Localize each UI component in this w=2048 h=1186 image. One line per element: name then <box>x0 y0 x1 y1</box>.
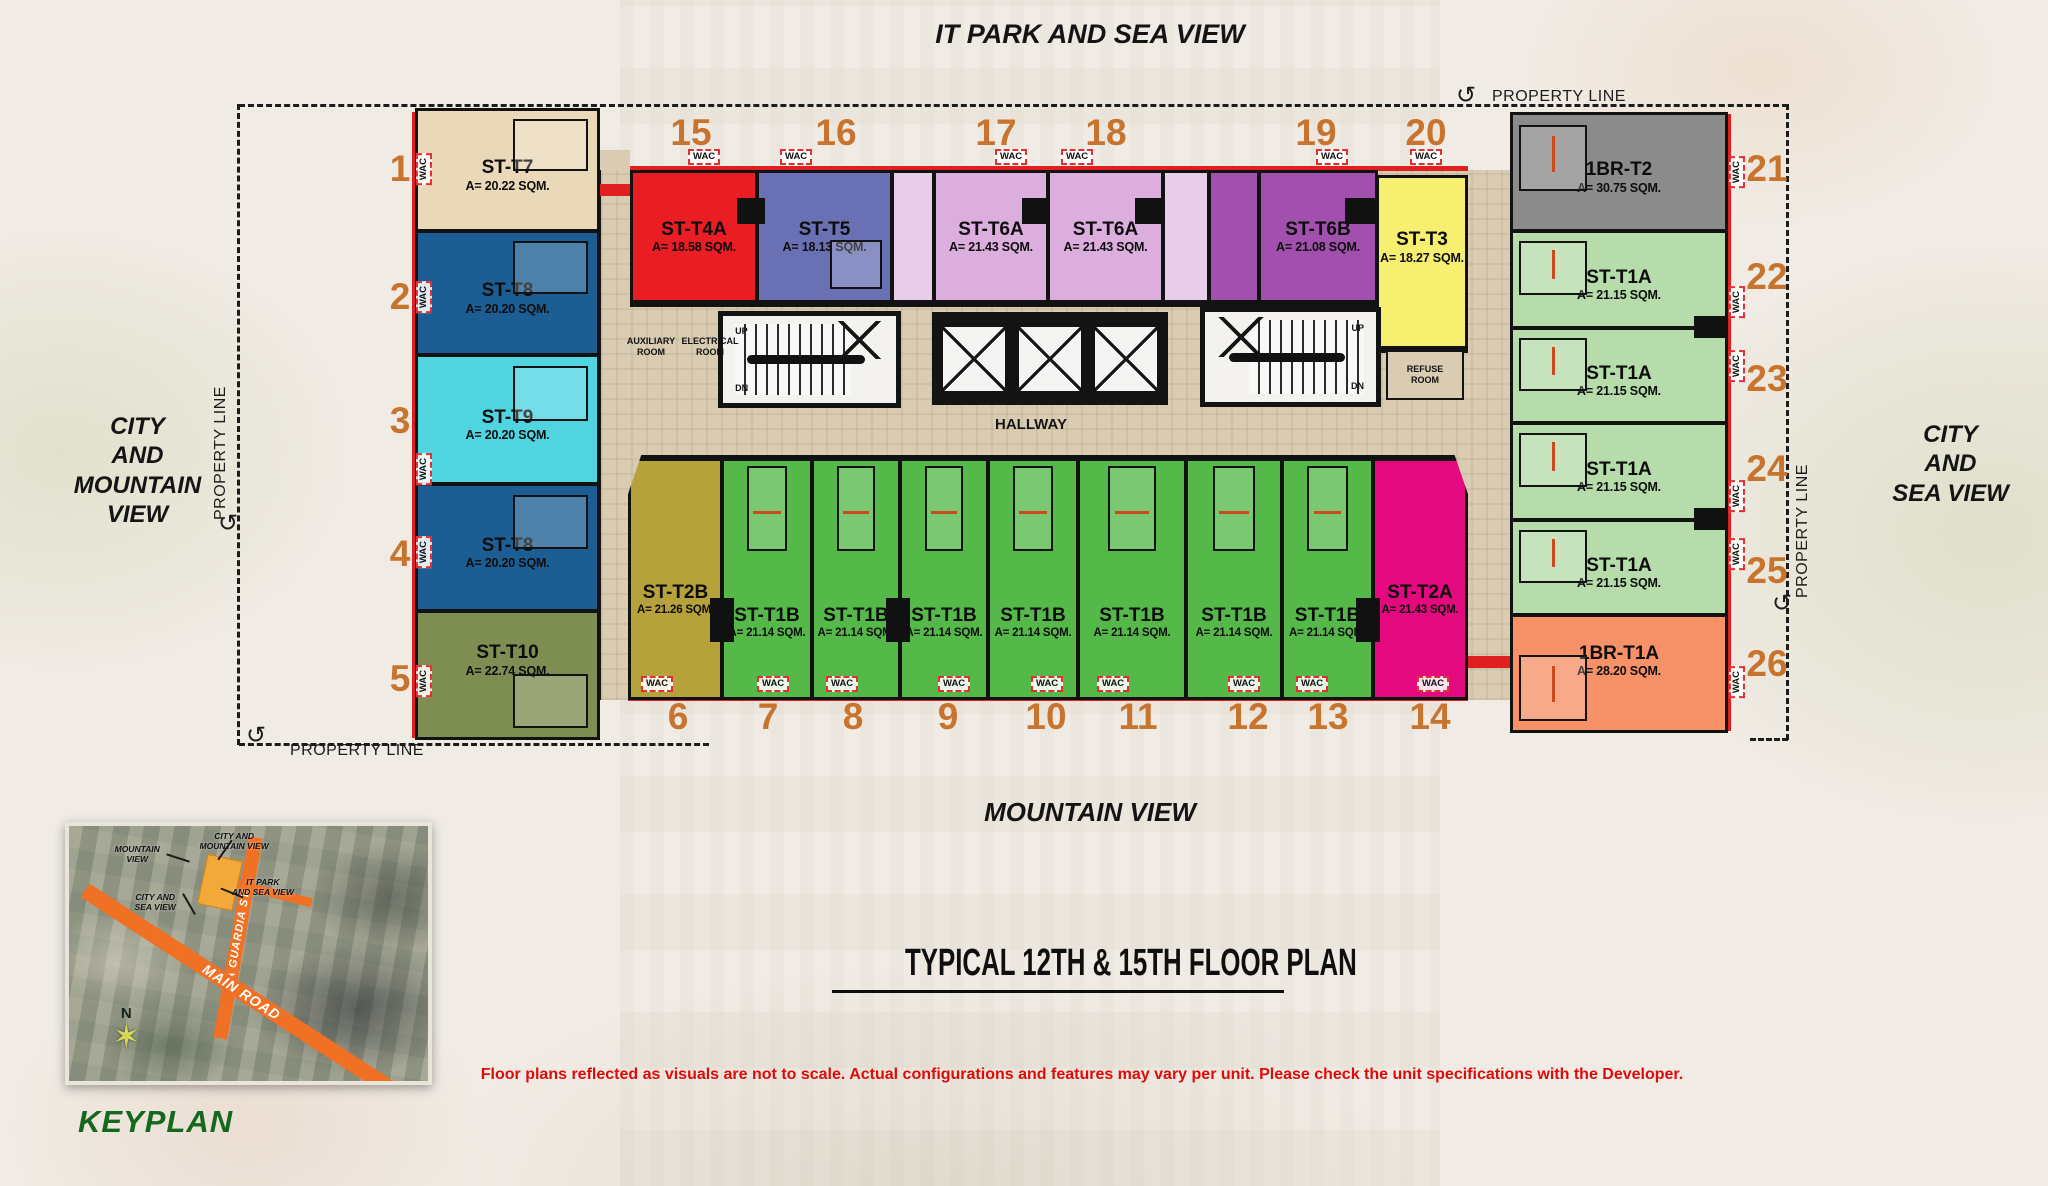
wac-label: WAC <box>826 676 858 692</box>
elevator-bank <box>932 312 1168 405</box>
property-line-marker-icon: ↺ <box>1456 84 1476 108</box>
wac-label: WAC <box>1097 676 1129 692</box>
wac-label: WAC <box>1061 149 1093 165</box>
unit-name: ST-T1A <box>1577 267 1661 289</box>
unit-st-t1b-9: ST-T1BA= 21.14 SQM. <box>899 455 989 700</box>
unit-area: A= 21.14 SQM. <box>1289 627 1366 639</box>
unit-name: ST-T1A <box>1577 459 1661 481</box>
property-line-label-right: PROPERTY LINE <box>1794 428 1812 598</box>
wac-label: WAC <box>1729 480 1745 512</box>
unit-number: 17 <box>973 112 1019 154</box>
bathroom-pod <box>1307 466 1347 551</box>
unit-name: ST-T3 <box>1380 229 1464 251</box>
door <box>1694 508 1728 530</box>
keyplan-callout-arrow <box>166 853 189 862</box>
door <box>737 198 765 224</box>
unit-st-t6a-18: ST-T6AA= 21.43 SQM. <box>1047 170 1164 307</box>
bathroom-pod <box>1213 466 1255 551</box>
bathroom-pod <box>1519 655 1587 721</box>
hallway-label: HALLWAY <box>995 416 1067 433</box>
door <box>1694 316 1728 338</box>
bathroom-pod <box>1519 125 1587 191</box>
property-line-left <box>237 104 240 745</box>
view-label-bottom: MOUNTAIN VIEW <box>900 797 1280 829</box>
bathroom-pod <box>747 466 787 551</box>
unit-number: 8 <box>830 696 876 738</box>
wac-label: WAC <box>1296 676 1328 692</box>
staircase-left: UP DN <box>718 311 901 408</box>
bathroom-pod <box>513 366 588 421</box>
bathroom-pod <box>925 466 964 551</box>
title-underline <box>832 990 1284 993</box>
unit-st-t1a-22: ST-T1AA= 21.15 SQM. <box>1510 230 1728 329</box>
unit-area: A= 18.27 SQM. <box>1380 251 1464 265</box>
unit-area: A= 21.14 SQM. <box>1094 627 1171 639</box>
unit-st-t1b-11: ST-T1BA= 21.14 SQM. <box>1077 455 1187 700</box>
unit-area: A= 21.15 SQM. <box>1577 480 1661 494</box>
unit-st-t1b-10: ST-T1BA= 21.14 SQM. <box>987 455 1079 700</box>
staircase-right: UP DN <box>1200 307 1381 407</box>
unit-name: ST-T1B <box>818 605 895 627</box>
unit-number: 21 <box>1744 148 1790 190</box>
stair-up-label: UP <box>735 326 748 336</box>
unit-st-t7: ST-T7A= 20.22 SQM. <box>415 108 600 232</box>
unit-area: A= 21.43 SQM. <box>949 240 1033 254</box>
unit-area: A= 20.20 SQM. <box>466 428 550 442</box>
wac-label: WAC <box>1316 149 1348 165</box>
unit-number: 6 <box>655 696 701 738</box>
door <box>1022 198 1050 224</box>
disclaimer-text: Floor plans reflected as visuals are not… <box>462 1066 1702 1084</box>
bathroom-pod <box>513 119 588 171</box>
wac-label: WAC <box>1729 286 1745 318</box>
unit-st-t1b-12: ST-T1BA= 21.14 SQM. <box>1185 455 1283 700</box>
compass: N ✶ <box>112 1005 141 1053</box>
wac-label: WAC <box>416 536 432 568</box>
unit-area: A= 21.14 SQM. <box>906 627 983 639</box>
bathroom-pod <box>1108 466 1156 551</box>
unit-st-t1a-25: ST-T1AA= 21.15 SQM. <box>1510 519 1728 616</box>
door <box>1356 598 1380 642</box>
door <box>710 598 734 642</box>
elevator-car <box>1016 324 1084 394</box>
bathroom-pod <box>513 674 588 729</box>
wac-label: WAC <box>416 281 432 313</box>
view-label-top: IT PARK AND SEA VIEW <box>840 18 1340 51</box>
wac-label: WAC <box>1417 676 1449 692</box>
keyplan-title: KEYPLAN <box>78 1104 233 1140</box>
view-label-left: CITY AND MOUNTAIN VIEW <box>55 412 220 529</box>
unit-number: 23 <box>1744 358 1790 400</box>
unit-area: A= 20.20 SQM. <box>466 556 550 570</box>
unit-st-t6b: ST-T6BA= 21.08 SQM. <box>1258 170 1378 307</box>
elevator-car <box>1092 324 1160 394</box>
wac-label: WAC <box>938 676 970 692</box>
door <box>1345 198 1375 224</box>
stair-cross <box>830 321 889 359</box>
wac-label: WAC <box>416 153 432 185</box>
unit-number: 15 <box>668 112 714 154</box>
auxiliary-room-label: AUXILIARY ROOM <box>622 336 680 359</box>
wac-label: WAC <box>641 676 673 692</box>
door <box>886 598 910 642</box>
unit-name: ST-T5 <box>783 219 867 241</box>
unit-area: A= 21.15 SQM. <box>1577 576 1661 590</box>
hallway-floor-patch <box>600 150 630 170</box>
bathroom-pod <box>513 241 588 294</box>
unit-area: A= 21.43 SQM. <box>1064 240 1148 254</box>
unit-number: 11 <box>1115 696 1161 738</box>
wac-label: WAC <box>757 676 789 692</box>
electrical-room-label: ELECTRICAL ROOM <box>680 336 740 359</box>
keyplan-callout-city-mountain-view: CITY AND MOUNTAIN VIEW <box>187 831 280 851</box>
wac-label: WAC <box>995 149 1027 165</box>
unit-number: 24 <box>1744 448 1790 490</box>
wac-label: WAC <box>1729 666 1745 698</box>
unit-number: 20 <box>1403 112 1449 154</box>
page-title: TYPICAL 12TH & 15TH FLOOR PLAN <box>905 942 1211 985</box>
unit-st-t2b: ST-T2BA= 21.26 SQM. <box>628 455 723 700</box>
unit-st-t1b-13: ST-T1BA= 21.14 SQM. <box>1281 455 1374 700</box>
unit-number: 16 <box>813 112 859 154</box>
wac-label: WAC <box>780 149 812 165</box>
unit-number: 3 <box>377 400 423 442</box>
unit-number: 9 <box>925 696 971 738</box>
property-line-marker-icon: ↺ <box>246 724 266 748</box>
unit-annex-room <box>891 170 935 307</box>
unit-name: 1BR-T2 <box>1577 159 1661 181</box>
door <box>1135 198 1163 224</box>
wac-label: WAC <box>1729 156 1745 188</box>
unit-annex-room <box>1208 170 1260 307</box>
unit-name: ST-T1B <box>906 605 983 627</box>
unit-number: 14 <box>1407 696 1453 738</box>
unit-area: A= 21.14 SQM. <box>995 627 1072 639</box>
road-main-label: MAIN ROAD <box>199 961 283 1023</box>
bathroom-pod <box>513 495 588 549</box>
stair-dn-label: DN <box>1351 381 1364 391</box>
unit-number: 19 <box>1293 112 1339 154</box>
elevator-car <box>940 324 1008 394</box>
unit-number: 18 <box>1083 112 1129 154</box>
unit-st-t1b-7: ST-T1BA= 21.14 SQM. <box>721 455 813 700</box>
wac-label: WAC <box>1729 350 1745 382</box>
property-line-label-top-right: PROPERTY LINE <box>1492 88 1626 106</box>
wac-label: WAC <box>1228 676 1260 692</box>
unit-st-t5: ST-T5A= 18.13 SQM. <box>756 170 893 307</box>
unit-name: ST-T4A <box>652 219 736 241</box>
unit-number: 12 <box>1225 696 1271 738</box>
link-bridge-red <box>600 184 630 196</box>
unit-area: A= 21.08 SQM. <box>1276 240 1360 254</box>
unit-name: ST-T1A <box>1577 363 1661 385</box>
unit-name: 1BR-T1A <box>1577 643 1661 665</box>
unit-st-t6a-17: ST-T6AA= 21.43 SQM. <box>933 170 1049 307</box>
bathroom-pod <box>1013 466 1053 551</box>
bathroom-pod <box>837 466 876 551</box>
unit-name: ST-T2A <box>1382 582 1459 604</box>
unit-area: A= 21.26 SQM. <box>637 604 714 616</box>
unit-number: 10 <box>1023 696 1069 738</box>
unit-area: A= 28.20 SQM. <box>1577 664 1661 678</box>
bathroom-pod <box>1519 530 1587 583</box>
unit-st-t3: ST-T3A= 18.27 SQM. <box>1376 175 1468 353</box>
bathroom-pod <box>1519 433 1587 487</box>
keyplan-callout-mountain-view: MOUNTAIN VIEW <box>105 844 170 864</box>
unit-name: ST-T1B <box>995 605 1072 627</box>
unit-1br-t2: 1BR-T2A= 30.75 SQM. <box>1510 112 1728 232</box>
link-bridge-red <box>1468 656 1512 668</box>
unit-area: A= 18.58 SQM. <box>652 240 736 254</box>
unit-name: ST-T1B <box>729 605 806 627</box>
unit-number: 7 <box>745 696 791 738</box>
unit-number: 26 <box>1744 643 1790 685</box>
unit-st-t8: ST-T8A= 20.20 SQM. <box>415 230 600 356</box>
property-line-marker-icon: ↺ <box>1772 592 1792 616</box>
unit-name: ST-T1B <box>1094 605 1171 627</box>
property-line-label-left: PROPERTY LINE <box>212 360 230 520</box>
unit-area: A= 21.14 SQM. <box>818 627 895 639</box>
unit-name: ST-T1B <box>1196 605 1273 627</box>
keyplan-map: LA GUARDIA ST. MAIN ROAD MOUNTAIN VIEW C… <box>65 822 432 1085</box>
unit-area: A= 21.43 SQM. <box>1382 604 1459 616</box>
property-line-marker-icon: ↺ <box>218 512 238 536</box>
wac-label: WAC <box>416 665 432 697</box>
keyplan-callout-city-sea-view: CITY AND SEA VIEW <box>119 892 191 912</box>
unit-name: ST-T2B <box>637 582 714 604</box>
bathroom-pod <box>830 240 882 288</box>
unit-name: ST-T10 <box>466 642 550 664</box>
floor-plan-page: IT PARK AND SEA VIEW CITY AND MOUNTAIN V… <box>0 0 2048 1186</box>
unit-st-t2a: ST-T2AA= 21.43 SQM. <box>1372 455 1468 700</box>
bathroom-pod <box>1519 338 1587 391</box>
unit-number: 25 <box>1744 550 1790 592</box>
unit-st-t10: ST-T10A= 22.74 SQM. <box>415 610 600 740</box>
stair-dn-label: DN <box>735 383 748 393</box>
unit-st-t9: ST-T9A= 20.20 SQM. <box>415 354 600 485</box>
view-label-right: CITY AND SEA VIEW <box>1868 420 2033 508</box>
unit-area: A= 21.15 SQM. <box>1577 384 1661 398</box>
compass-star-icon: ✶ <box>112 1022 141 1053</box>
unit-area: A= 21.15 SQM. <box>1577 288 1661 302</box>
bathroom-pod <box>1519 241 1587 295</box>
unit-name: ST-T6A <box>949 219 1033 241</box>
wac-label: WAC <box>416 453 432 485</box>
unit-st-t1b-8: ST-T1BA= 21.14 SQM. <box>811 455 901 700</box>
property-line-label-bottom-left: PROPERTY LINE <box>290 742 424 760</box>
unit-annex-room <box>1162 170 1210 307</box>
unit-area: A= 30.75 SQM. <box>1577 181 1661 195</box>
unit-number: 22 <box>1744 256 1790 298</box>
unit-number: 13 <box>1305 696 1351 738</box>
unit-area: A= 21.14 SQM. <box>1196 627 1273 639</box>
wac-label: WAC <box>1729 538 1745 570</box>
wac-label: WAC <box>1410 149 1442 165</box>
unit-area: A= 20.22 SQM. <box>466 179 550 193</box>
stair-up-label: UP <box>1352 323 1365 333</box>
wac-label: WAC <box>1031 676 1063 692</box>
unit-name: ST-T1B <box>1289 605 1366 627</box>
unit-st-t1a-24: ST-T1AA= 21.15 SQM. <box>1510 422 1728 521</box>
unit-1br-t1a: 1BR-T1AA= 28.20 SQM. <box>1510 614 1728 733</box>
unit-st-t8-2: ST-T8A= 20.20 SQM. <box>415 483 600 612</box>
unit-name: ST-T1A <box>1577 555 1661 577</box>
stair-cross <box>1212 317 1270 357</box>
wac-label: WAC <box>688 149 720 165</box>
refuse-room: REFUSE ROOM <box>1386 350 1464 400</box>
unit-area: A= 21.14 SQM. <box>729 627 806 639</box>
unit-st-t1a-23: ST-T1AA= 21.15 SQM. <box>1510 327 1728 424</box>
unit-area: A= 20.20 SQM. <box>466 302 550 316</box>
refuse-room-label: REFUSE ROOM <box>1407 364 1444 387</box>
unit-st-t4a: ST-T4AA= 18.58 SQM. <box>630 170 758 307</box>
property-line-bottom-right <box>1750 738 1788 741</box>
